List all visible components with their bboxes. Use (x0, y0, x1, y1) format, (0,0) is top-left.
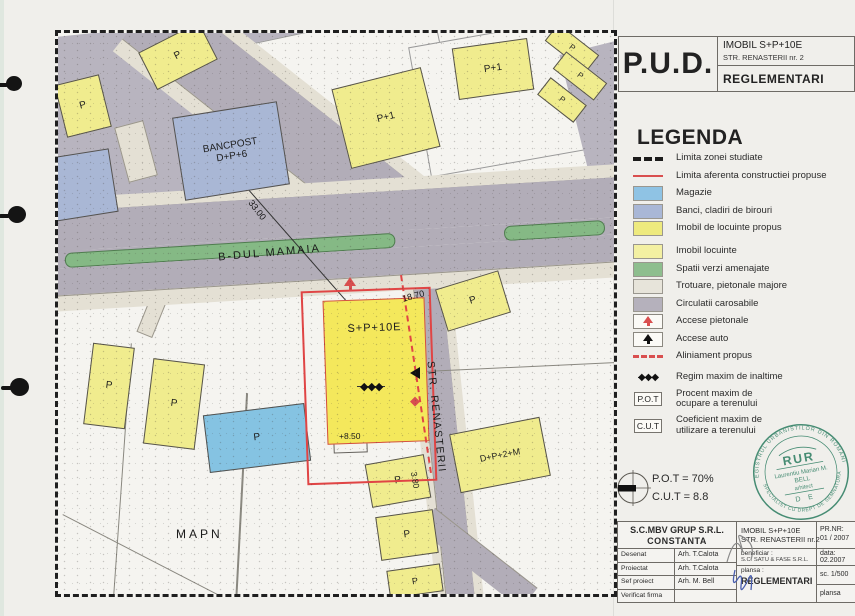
cut-value: C.U.T = 8.8 (652, 489, 714, 507)
building-bancpost: BANCPOST D+P+6 (172, 101, 290, 201)
footer-prnr-label: PR.NR: (820, 526, 844, 533)
legend-label-circulatii: Circulatii carosabile (676, 299, 758, 310)
legend-symbol-regim-inaltime: ◆◆◆ (633, 371, 663, 384)
pud-title: P.U.D. (623, 47, 713, 81)
footer-plansa2: plansa (820, 590, 841, 597)
legend-symbol-circulatii (633, 298, 663, 311)
legend-label-spatii-verzi: Spatii verzi amenajate (676, 264, 769, 275)
stamp-de: D E (795, 492, 816, 503)
building-bldg-p-s2: P (375, 509, 439, 561)
footer-prnr: 01 / 2007 (820, 535, 849, 542)
legend-label-banci: Banci, cladiri de birouri (676, 206, 772, 217)
legend-item-limita-constructie: Limita aferenta constructiei propuse (633, 170, 853, 183)
map-label-dim-8-50: +8.50 (339, 431, 361, 441)
legend-item-limita-zona: Limita zonei studiate (633, 152, 853, 165)
map-label-mapn: MAPN (176, 527, 223, 541)
legend-symbol-imobil-locuinte (633, 245, 663, 258)
legend-symbol-magazie (633, 187, 663, 200)
signature-scribble (721, 526, 769, 598)
legend-item-pot: P.O.TProcent maxim de ocupare a terenulu… (633, 389, 853, 411)
pedestrian-access-diamond: ◆ (410, 393, 420, 409)
legend-label-accese-auto: Accese auto (676, 334, 728, 345)
legend-symbol-trotuare (633, 280, 663, 293)
footer-scale: sc. 1/500 (820, 571, 848, 578)
legend-symbol-limita-constructie (633, 175, 663, 177)
legend-item-imobil-locuinte: Imobil locuinte (633, 245, 853, 258)
legend-label-limita-constructie: Limita aferenta constructiei propuse (676, 171, 827, 182)
legend-item-aliniament: Aliniament propus (633, 350, 853, 363)
title-divider-h (717, 65, 854, 66)
building-bldg-p-s3: P (386, 563, 443, 597)
footer-company: S.C.MBV GRUP S.R.L. (618, 525, 736, 535)
footer-data: 02.2007 (820, 557, 845, 564)
legend-item-imobil-propus: Imobil de locuinte propus (633, 222, 853, 235)
binder-mark-1 (6, 76, 22, 91)
legend-item-accese-pietonale: Accese pietonale (633, 315, 853, 328)
footer-row-value-0: Arh. T.Calota (678, 551, 718, 558)
stamp-role: arhitect (794, 483, 814, 492)
footer-row-value-1: Arh. T.Calota (678, 565, 718, 572)
legend-symbol-banci (633, 205, 663, 218)
legend-label-aliniament: Aliniament propus (676, 351, 752, 362)
pud-cell: P.U.D. (619, 37, 717, 91)
footer-row-label-1: Proiectat (621, 565, 648, 572)
legend-item-circulatii: Circulatii carosabile (633, 298, 853, 311)
project-name: IMOBIL S+P+10E (723, 40, 802, 51)
legend-label-pot: Procent maxim de ocupare a terenului (676, 389, 757, 411)
footer-row-label-0: Desenat (621, 551, 646, 558)
project-address: STR. RENASTERII nr. 2 (723, 53, 804, 62)
building-magazie-bldg: P (203, 403, 311, 473)
footer-city: CONSTANTA (618, 536, 736, 546)
binder-mark-3 (10, 378, 29, 396)
legend-symbol-aliniament (633, 355, 663, 358)
legend-label-magazie: Magazie (676, 188, 712, 199)
footer-row-value-2: Arh. M. Bell (678, 578, 714, 585)
pedestrian-access-arrow (344, 277, 356, 291)
page-edge-strip (0, 0, 4, 616)
legend-label-imobil-propus: Imobil de locuinte propus (676, 223, 782, 234)
building-bldg-p1-upper: P+1 (452, 38, 534, 100)
legend-label-imobil-locuinte: Imobil locuinte (676, 246, 737, 257)
footer-data-label: data: (820, 550, 836, 557)
legend-label-regim-inaltime: Regim maxim de inaltime (676, 372, 783, 383)
legend-item-magazie: Magazie (633, 187, 853, 200)
legend-symbol-imobil-propus (633, 222, 663, 235)
footer-row-label-2: Sef proiect (621, 578, 654, 585)
legend-item-regim-inaltime: ◆◆◆Regim maxim de inaltime (633, 371, 853, 384)
legend-symbol-cut: C.U.T (633, 419, 663, 432)
pot-cut-indicators: P.O.T = 70% C.U.T = 8.8 (652, 471, 714, 506)
building-bldg-p-sw1: P (83, 343, 135, 430)
scanned-pud-sheet: { "title_block": { "pud": "P.U.D.", "pro… (0, 0, 855, 616)
legend-label-limita-zona: Limita zonei studiate (676, 153, 763, 164)
north-symbol (614, 469, 652, 507)
legend-items: Limita zonei studiateLimita aferenta con… (633, 152, 853, 441)
legend-item-spatii-verzi: Spatii verzi amenajate (633, 263, 853, 276)
title-divider-v (717, 37, 718, 91)
footer-title-block: S.C.MBV GRUP S.R.L. CONSTANTA DesenatArh… (617, 521, 855, 603)
legend-item-accese-auto: Accese auto (633, 333, 853, 346)
legend-symbol-accese-pietonale (633, 315, 663, 328)
legend-symbol-spatii-verzi (633, 263, 663, 276)
legend-item-banci: Banci, cladiri de birouri (633, 205, 853, 218)
site-plan-map: BANCPOST D+P+6PPP+1P+1PPPPD+P+2+MPPPPPP … (55, 30, 617, 597)
legend-label-trotuare: Trotuare, pietonale majore (676, 281, 787, 292)
title-block: P.U.D. IMOBIL S+P+10E STR. RENASTERII nr… (618, 36, 855, 92)
building-bldg-p-sw2: P (143, 358, 205, 450)
architect-stamp: REGISTRUL URBANISTILOR DIN ROMANIA SPECI… (740, 412, 855, 533)
legend-symbol-accese-auto (633, 333, 663, 346)
legend-symbol-limita-zona (633, 157, 663, 161)
legend-item-trotuare: Trotuare, pietonale majore (633, 280, 853, 293)
height-regime-diamonds: ◆◆◆ (357, 380, 385, 393)
building-bldg-bluegray-left (55, 148, 119, 221)
auto-access-arrow (410, 367, 420, 379)
pot-value: P.O.T = 70% (652, 471, 714, 489)
legend-label-accese-pietonale: Accese pietonale (676, 316, 748, 327)
footer-row-label-3: Verificat firma (621, 592, 662, 599)
legend-symbol-pot: P.O.T (633, 393, 663, 406)
legend-title: LEGENDA (637, 126, 743, 150)
sheet-name: REGLEMENTARI (723, 72, 824, 86)
binder-mark-2 (8, 206, 26, 223)
